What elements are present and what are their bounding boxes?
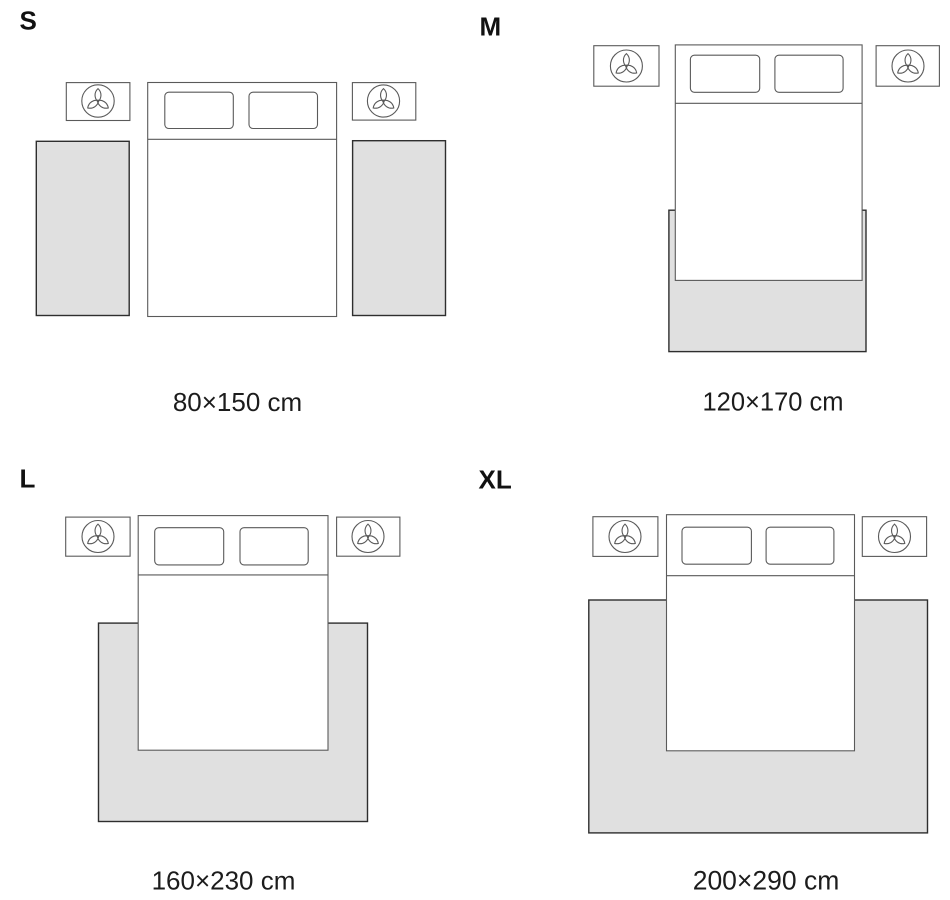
- svg-text:S: S: [20, 6, 37, 36]
- svg-text:160×230 cm: 160×230 cm: [152, 866, 296, 896]
- svg-text:XL: XL: [479, 465, 512, 495]
- svg-text:L: L: [20, 464, 36, 494]
- svg-text:M: M: [480, 11, 502, 41]
- svg-text:200×290 cm: 200×290 cm: [693, 865, 840, 895]
- svg-text:120×170 cm: 120×170 cm: [702, 388, 843, 416]
- svg-text:80×150 cm: 80×150 cm: [173, 387, 302, 417]
